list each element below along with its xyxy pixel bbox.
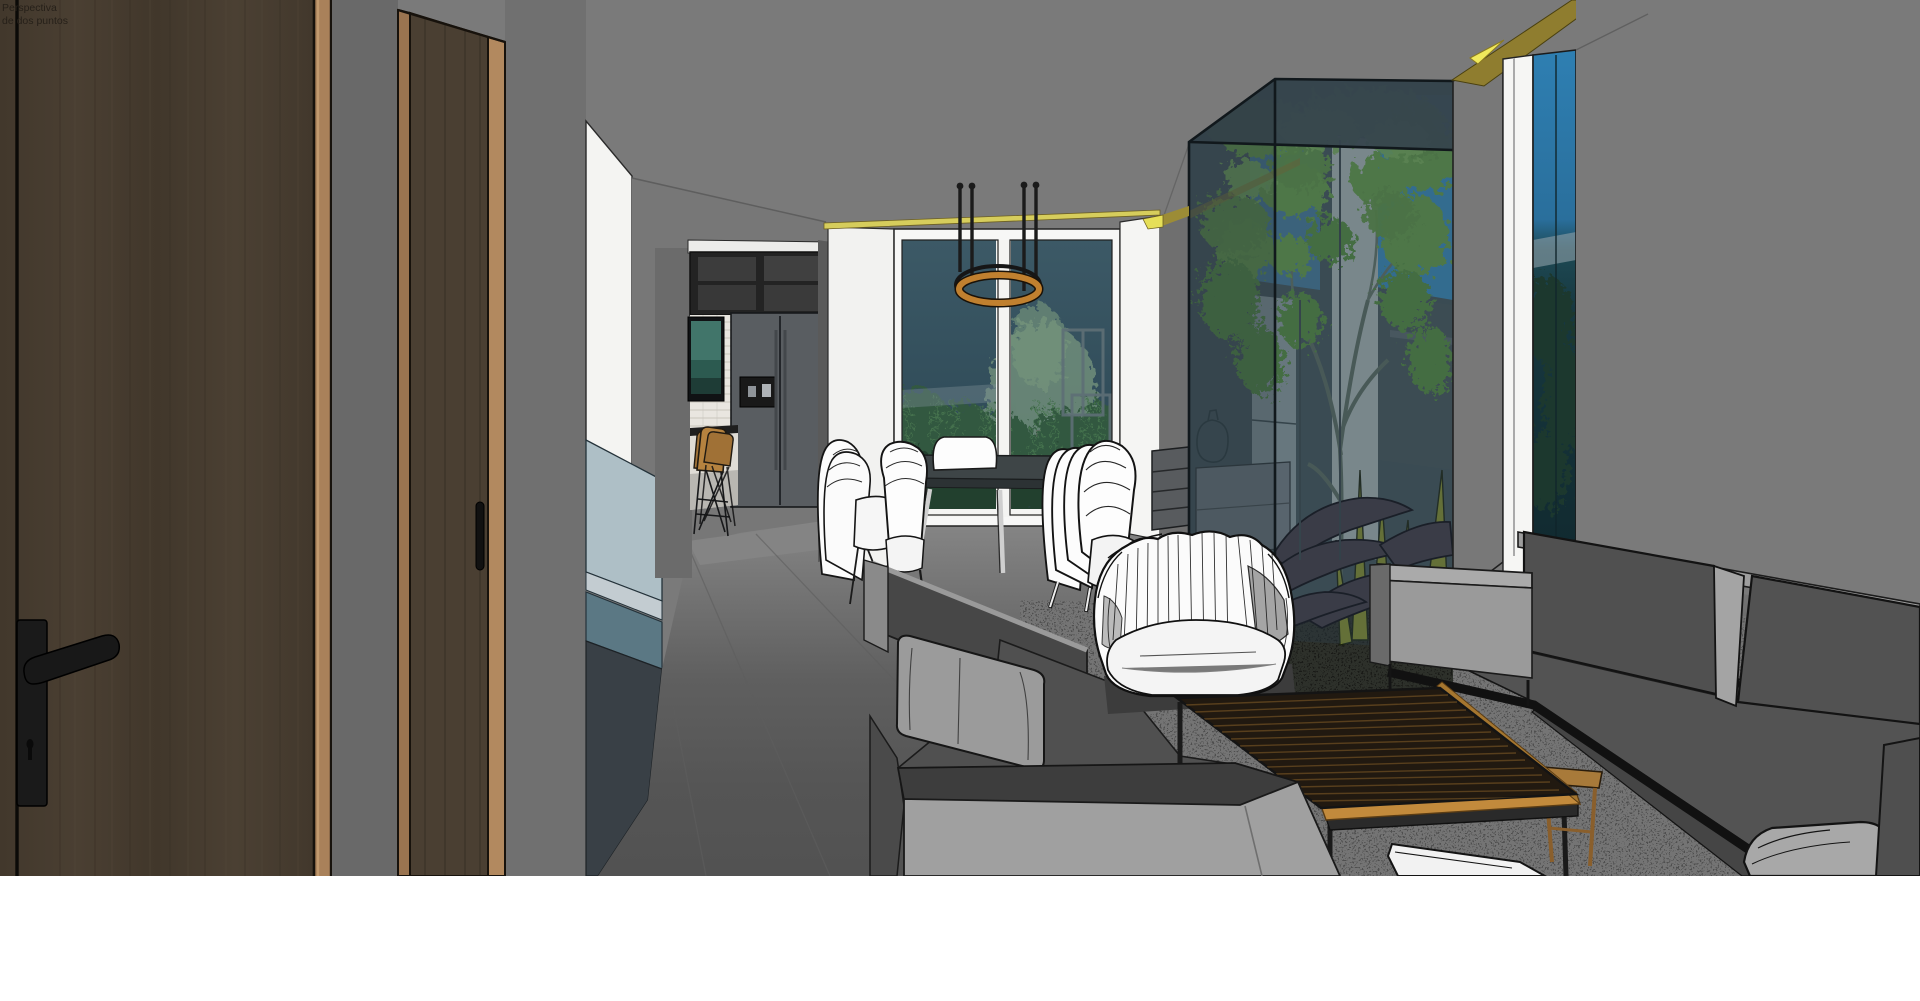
svg-text:de dos puntos: de dos puntos	[2, 15, 68, 27]
svg-text:Perspectiva: Perspectiva	[2, 2, 57, 14]
